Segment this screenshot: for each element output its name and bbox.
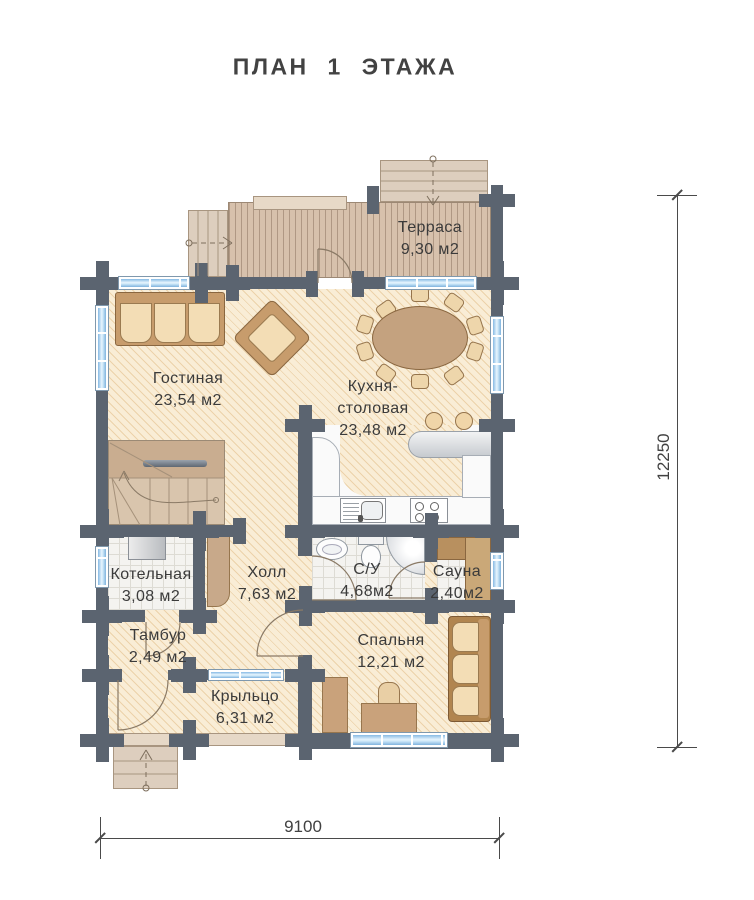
room-name: Сауна [430, 561, 483, 583]
room-label-vestibule: Тамбур 2,49 м2 [129, 625, 187, 669]
desk [361, 703, 417, 733]
room-area: 12,21 м2 [357, 652, 425, 674]
log-post [479, 194, 515, 207]
burner [415, 502, 424, 511]
log-post [96, 718, 109, 762]
log-post [299, 586, 312, 626]
room-label-hall: Холл 7,63 м2 [238, 562, 296, 606]
door-jamb [306, 271, 318, 297]
kitchen-counter-bottom [312, 496, 491, 525]
room-label-living: Гостиная 23,54 м2 [153, 368, 223, 412]
window-boiler-left [95, 546, 109, 588]
dimension-value-vertical: 12250 [654, 430, 674, 483]
room-area: 2,40м2 [430, 583, 483, 605]
door-jamb [352, 271, 364, 297]
room-label-boiler: Котельная 3,08 м2 [110, 564, 191, 608]
room-area: 9,30 м2 [398, 239, 462, 261]
terrace-entry-stairs [380, 160, 488, 202]
hall-wardrobe [207, 533, 230, 607]
staircase [108, 440, 225, 525]
sofa-cushion [120, 303, 152, 343]
room-name: Терраса [398, 217, 462, 239]
room-area: 4,68м2 [340, 581, 393, 603]
log-post [491, 588, 504, 624]
deck-side-stairs [188, 210, 228, 277]
bed-sofa [448, 616, 491, 722]
stair-handrail [143, 460, 207, 467]
log-post [425, 513, 438, 549]
deck-step-board [253, 196, 347, 210]
armchair-cushion [247, 313, 298, 364]
room-name: Гостиная [153, 368, 223, 390]
window-living-left [95, 305, 109, 391]
window-kitchen-right [490, 316, 504, 394]
window-kitchen-top [385, 276, 477, 290]
log-post [367, 186, 379, 214]
log-post [491, 718, 504, 762]
room-area: 6,31 м2 [211, 708, 279, 730]
dimension-line-vertical [677, 195, 678, 748]
room-label-porch: Крыльцо 6,31 м2 [211, 686, 279, 730]
log-post [183, 720, 196, 760]
log-post [195, 263, 208, 303]
room-area: 23,54 м2 [153, 390, 223, 412]
log-post [96, 261, 109, 305]
log-post [479, 419, 515, 432]
faucet [358, 515, 363, 522]
burner [430, 502, 439, 511]
room-name: Холл [238, 562, 296, 584]
window-sauna-right [490, 552, 504, 590]
entrance-steps [113, 746, 178, 789]
log-post [193, 511, 206, 551]
sink-basin [322, 544, 342, 555]
room-area: 23,48 м2 [337, 420, 408, 442]
dining-chair [411, 374, 429, 389]
sink-bowl [361, 501, 383, 520]
bed-cushion [452, 654, 479, 684]
room-area: 3,08 м2 [110, 586, 191, 608]
bar-stool [455, 412, 473, 430]
room-area: 7,63 м2 [238, 584, 296, 606]
log-post [491, 509, 504, 553]
log-post [96, 596, 109, 636]
log-post [193, 598, 206, 634]
room-label-terrace: Терраса 9,30 м2 [398, 217, 462, 261]
bedroom-cabinet [322, 677, 348, 733]
bed-back [478, 619, 489, 718]
room-name: Котельная [110, 564, 191, 586]
burner [415, 513, 424, 522]
dining-table [372, 306, 468, 370]
room-label-kitchen: Кухня- столовая 23,48 м2 [337, 376, 408, 442]
room-label-bathroom: С/У 4,68м2 [340, 559, 393, 603]
kitchen-sink [340, 498, 386, 523]
room-area: 2,49 м2 [129, 647, 187, 669]
room-label-sauna: Сауна 2,40м2 [430, 561, 483, 605]
drainboard [343, 502, 359, 520]
boiler-unit [128, 534, 166, 560]
room-name: Кухня- [337, 376, 408, 398]
sofa-cushion [154, 303, 186, 343]
kitchen-counter-right [462, 455, 491, 498]
room-name: столовая [337, 398, 408, 420]
dimension-line-horizontal [100, 838, 500, 839]
log-post [299, 655, 312, 695]
log-post [491, 261, 504, 305]
toilet-tank [358, 536, 384, 545]
page-title: ПЛАН 1 ЭТАЖА [233, 54, 457, 81]
dimension-value-horizontal: 9100 [281, 817, 325, 837]
window-hall-porch [208, 669, 284, 681]
bar-stool [425, 412, 443, 430]
sofa [115, 292, 225, 346]
room-name: Тамбур [129, 625, 187, 647]
log-post [233, 518, 246, 544]
sofa-cushion [188, 303, 220, 343]
log-post [299, 720, 312, 760]
log-post [96, 655, 109, 695]
room-name: Спальня [357, 630, 425, 652]
room-name: Крыльцо [211, 686, 279, 708]
room-name: С/У [340, 559, 393, 581]
window-living-top [118, 276, 190, 290]
bathroom-sink [316, 538, 348, 560]
log-post [226, 265, 239, 301]
bar-counter [408, 431, 492, 458]
room-label-bedroom: Спальня 12,21 м2 [357, 630, 425, 674]
window-bedroom-bottom [350, 732, 448, 748]
bed-cushion [452, 686, 479, 716]
log-post [299, 511, 312, 551]
floor-plan: ПЛАН 1 ЭТАЖА [0, 0, 754, 900]
log-post [299, 405, 312, 445]
bed-cushion [452, 622, 479, 652]
